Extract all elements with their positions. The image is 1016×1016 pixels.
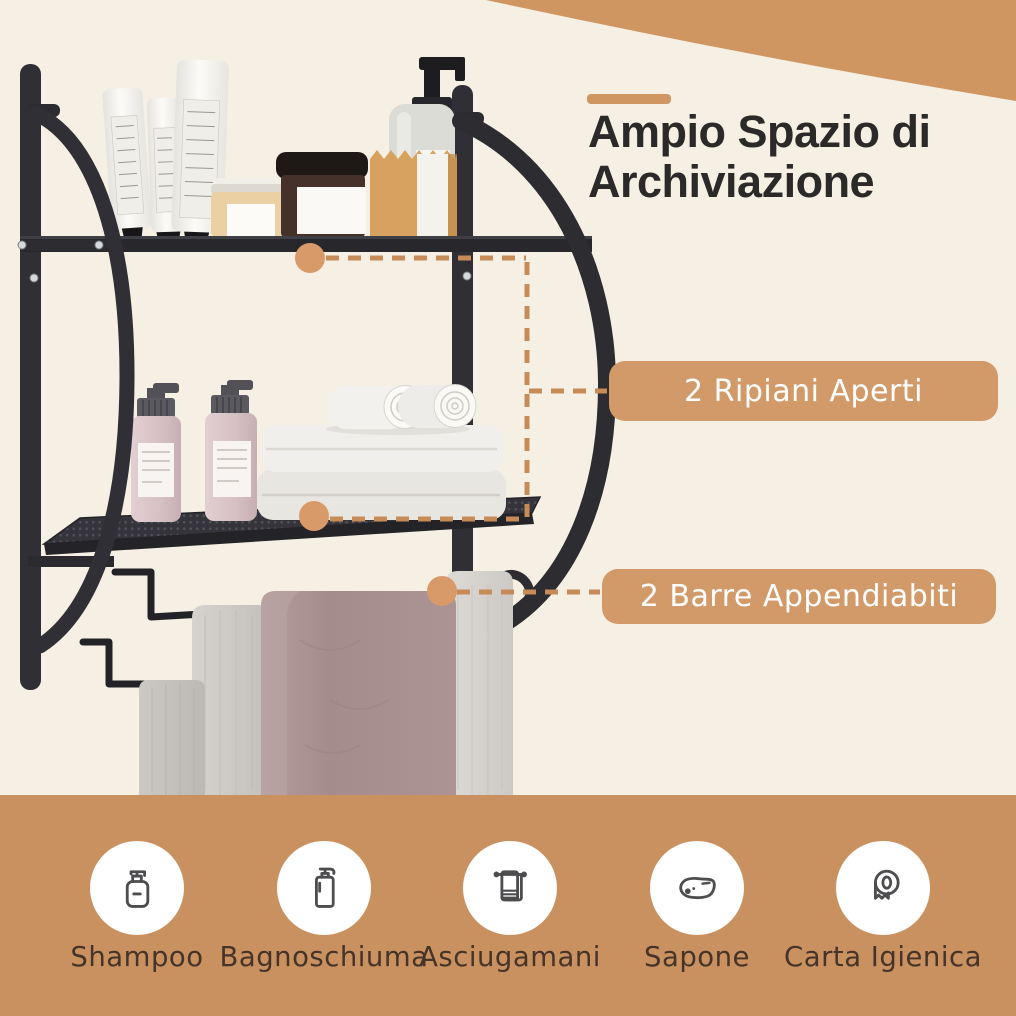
towel-pale	[446, 571, 513, 795]
brown-jar	[276, 152, 368, 237]
hanging-towels	[139, 571, 513, 795]
shampoo-bottle-icon	[111, 862, 163, 914]
callout-label: 2 Ripiani Aperti	[684, 374, 923, 409]
kraft-box	[370, 150, 457, 237]
connector-dot	[427, 576, 457, 606]
rolled-towels	[326, 385, 476, 436]
page-title: Ampio Spazio di Archiviazione	[588, 107, 1016, 207]
pink-pump-bottle	[205, 380, 257, 521]
towel-gray-small	[139, 680, 205, 795]
feature-circle-shampoo	[90, 841, 184, 935]
pink-pump-bottle	[131, 383, 181, 522]
product-infographic: Ampio Spazio di Archiviazione 2 Ripiani …	[0, 0, 1016, 1016]
callout-open-shelves: 2 Ripiani Aperti	[609, 361, 998, 421]
folded-towels	[257, 425, 506, 520]
towel-pink	[261, 591, 456, 795]
callout-label: 2 Barre Appendiabiti	[640, 579, 958, 614]
shower-gel-bottle-icon	[298, 862, 350, 914]
soap-bar-icon	[671, 862, 723, 914]
title-accent-bar	[587, 94, 671, 104]
towel-icon	[484, 862, 536, 914]
bottom-shelf-items	[131, 380, 506, 522]
cream-jar	[211, 178, 291, 237]
callout-towel-bars: 2 Barre Appendiabiti	[602, 569, 996, 624]
feature-circle-bagnoschiuma	[277, 841, 371, 935]
top-shelf-items	[102, 57, 465, 249]
connector-dot	[299, 501, 329, 531]
feature-circle-carta-igienica	[836, 841, 930, 935]
feature-circle-asciugamani	[463, 841, 557, 935]
connector-dot	[295, 243, 325, 273]
feature-label-carta-igienica: Carta Igienica	[763, 941, 1003, 973]
toilet-paper-icon	[857, 862, 909, 914]
feature-circle-sapone	[650, 841, 744, 935]
